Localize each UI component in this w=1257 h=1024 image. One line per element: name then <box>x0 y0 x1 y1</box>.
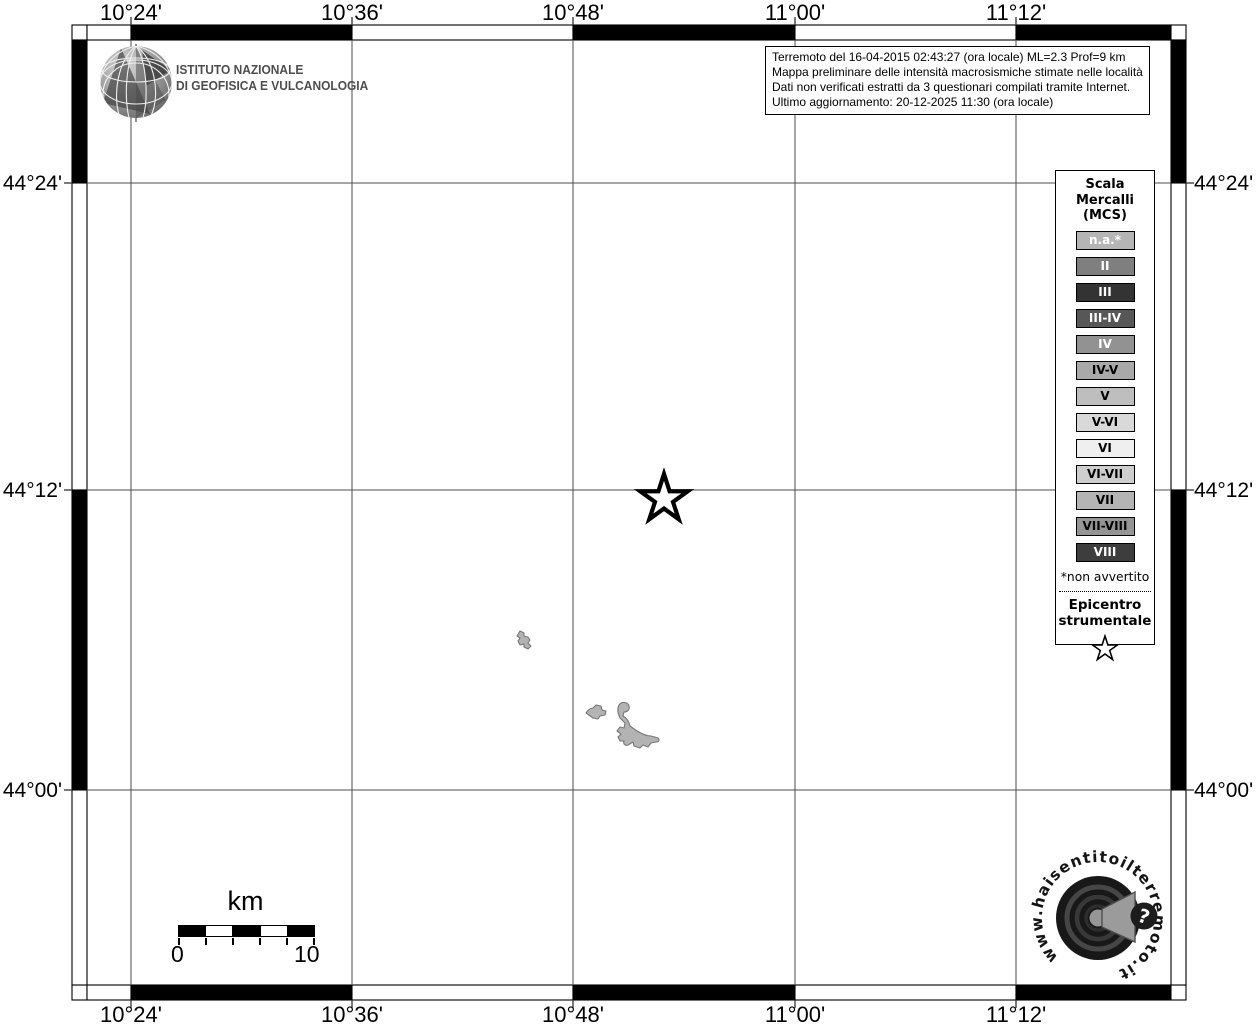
scale-tick <box>286 938 288 945</box>
scale-tick <box>259 938 261 945</box>
axis-label-right-0: 44°24' <box>1194 172 1253 196</box>
legend-item-vii: VII <box>1076 491 1135 510</box>
legend-item-n.a.*: n.a.* <box>1076 231 1135 250</box>
scale-end-label: 10 <box>294 941 320 968</box>
mercalli-legend: Scala Mercalli (MCS) n.a.*IIIIIIII-IVIVI… <box>1055 170 1155 645</box>
axis-label-left-2: 44°00' <box>0 779 62 803</box>
legend-item-iv: IV <box>1076 335 1135 354</box>
axis-label-bottom-2: 10°48' <box>528 1002 618 1024</box>
legend-item-vi: VI <box>1076 439 1135 458</box>
info-line-source: Dati non verificati estratti da 3 questi… <box>772 80 1143 95</box>
legend-item-v: V <box>1076 387 1135 406</box>
legend-title-line-1: Scala <box>1056 177 1154 193</box>
legend-item-iii-iv: III-IV <box>1076 309 1135 328</box>
axis-label-top-1: 10°36' <box>307 0 397 26</box>
info-line-map-type: Mappa preliminare delle intensità macros… <box>772 65 1143 80</box>
scale-tick <box>232 938 234 945</box>
axis-label-top-0: 10°24' <box>86 0 176 26</box>
scale-bar-unit: km <box>178 886 313 917</box>
legend-epicenter-star-icon <box>1090 633 1120 663</box>
scale-segment <box>206 926 233 936</box>
legend-item-iii: III <box>1076 283 1135 302</box>
axis-label-bottom-3: 11°00' <box>750 1002 840 1024</box>
map-frame <box>72 25 1186 1000</box>
scale-bar-segments <box>178 925 315 937</box>
info-line-updated: Ultimo aggiornamento: 20-12-2025 11:30 (… <box>772 95 1143 110</box>
legend-items: n.a.*IIIIIIII-IVIVIV-VVV-VIVIVI-VIIVIIVI… <box>1056 231 1154 562</box>
scale-tick <box>205 938 207 945</box>
macroseismic-map-page: www.haisentitoilterremoto.it ? 10°24' 10… <box>0 0 1257 1024</box>
legend-epicenter-line-2: strumentale <box>1056 613 1154 630</box>
legend-epicenter-line-1: Epicentro <box>1056 597 1154 614</box>
axis-label-right-1: 44°12' <box>1194 479 1253 503</box>
haisentito-logo: www.haisentitoilterremoto.it ? <box>1028 848 1169 984</box>
legend-footnote: *non avvertito <box>1056 570 1154 584</box>
legend-item-vii-viii: VII-VIII <box>1076 517 1135 536</box>
legend-item-v-vi: V-VI <box>1076 413 1135 432</box>
legend-item-vi-vii: VI-VII <box>1076 465 1135 484</box>
locality-polygon-2 <box>586 705 606 719</box>
graticule-lines <box>87 40 1171 985</box>
legend-item-ii: II <box>1076 257 1135 276</box>
axis-ticks <box>64 17 1194 1008</box>
legend-title-line-3: (MCS) <box>1056 208 1154 224</box>
locality-polygon-3 <box>617 702 659 748</box>
scale-segment <box>288 926 314 936</box>
legend-epicenter-label: Epicentro strumentale <box>1056 597 1154 630</box>
axis-label-bottom-1: 10°36' <box>307 1002 397 1024</box>
ingv-globe-logo <box>100 44 172 125</box>
locality-polygons <box>517 631 659 748</box>
scale-segment <box>233 926 260 936</box>
legend-item-iv-v: IV-V <box>1076 361 1135 380</box>
ingv-wordmark: ISTITUTO NAZIONALE DI GEOFISICA E VULCAN… <box>176 62 368 94</box>
axis-label-right-2: 44°00' <box>1194 779 1253 803</box>
axis-label-top-2: 10°48' <box>528 0 618 26</box>
axis-label-top-3: 11°00' <box>750 0 840 26</box>
ingv-line-2: DI GEOFISICA E VULCANOLOGIA <box>176 78 368 94</box>
epicenter-star <box>640 474 688 519</box>
locality-polygon-1 <box>517 631 531 649</box>
earthquake-info-box: Terremoto del 16-04-2015 02:43:27 (ora l… <box>765 46 1150 115</box>
scale-segment <box>179 926 206 936</box>
axis-label-left-1: 44°12' <box>0 479 62 503</box>
axis-label-left-0: 44°24' <box>0 172 62 196</box>
scale-start-label: 0 <box>171 941 184 968</box>
legend-item-viii: VIII <box>1076 543 1135 562</box>
axis-label-bottom-4: 11°12' <box>971 1002 1061 1024</box>
scale-segment <box>261 926 288 936</box>
axis-label-bottom-0: 10°24' <box>86 1002 176 1024</box>
legend-title: Scala Mercalli (MCS) <box>1056 171 1154 224</box>
legend-title-line-2: Mercalli <box>1056 193 1154 209</box>
ingv-line-1: ISTITUTO NAZIONALE <box>176 62 368 78</box>
axis-label-top-4: 11°12' <box>971 0 1061 26</box>
info-line-event: Terremoto del 16-04-2015 02:43:27 (ora l… <box>772 50 1143 65</box>
legend-divider <box>1059 591 1151 592</box>
